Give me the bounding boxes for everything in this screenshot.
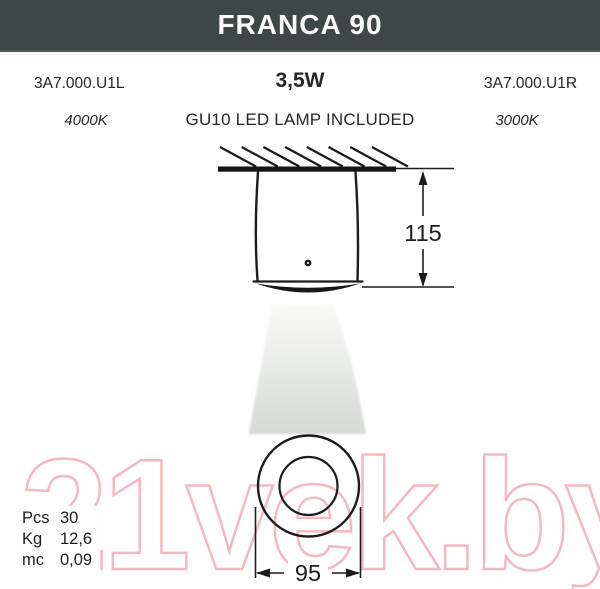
- spec-value: 0,09: [60, 551, 92, 569]
- product-spec-sheet: FRANCA 90 3A7.000.U1L 3,5W 3A7.000.U1R 4…: [0, 0, 600, 589]
- height-dimension: 115: [362, 169, 454, 288]
- screw-dot: [305, 260, 312, 267]
- top-view: [258, 436, 359, 537]
- specs-table: Pcs30 Kg12,6 mc0,09: [20, 506, 100, 573]
- spec-label: Pcs: [22, 508, 60, 529]
- fixture-lens: [256, 284, 360, 293]
- product-code-right: 3A7.000.U1R: [484, 75, 577, 93]
- header-bar: FRANCA 90: [0, 0, 600, 52]
- height-dimension-label: 115: [404, 220, 441, 246]
- top-view-outer-circle: [258, 436, 359, 537]
- spec-row-mc: mc0,09: [22, 550, 92, 571]
- top-view-inner-circle: [280, 457, 338, 515]
- spec-value: 30: [60, 509, 78, 527]
- page-title: FRANCA 90: [217, 9, 382, 41]
- spec-label: mc: [22, 550, 60, 571]
- spec-row-kg: Kg12,6: [22, 529, 92, 550]
- diameter-dimension-label: 95: [295, 560, 321, 586]
- spec-label: Kg: [22, 529, 60, 550]
- ceiling-line: [218, 167, 396, 172]
- spec-value: 12,6: [60, 530, 92, 548]
- spec-row-pcs: Pcs30: [22, 508, 92, 529]
- color-temp-right: 3000K: [470, 112, 564, 129]
- light-beam: [249, 303, 366, 434]
- ceiling-hatching: [220, 147, 408, 167]
